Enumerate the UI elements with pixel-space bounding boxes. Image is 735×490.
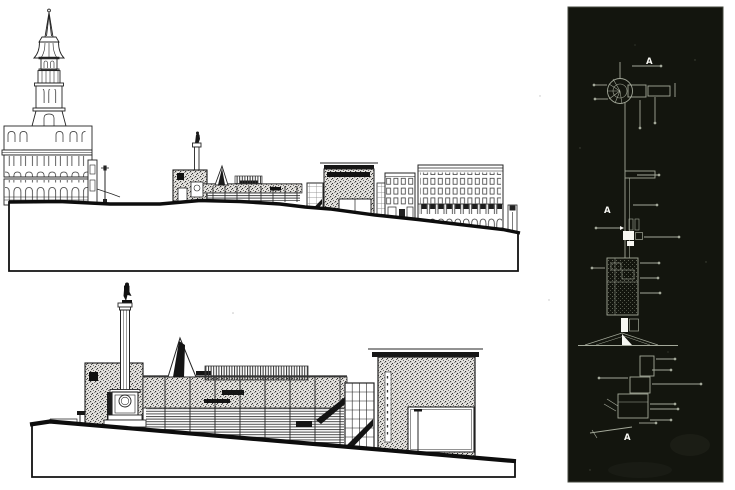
site-plan-background [568, 7, 723, 482]
museum-wing-top [173, 166, 302, 202]
vertical-sign [385, 372, 391, 442]
drawing-sheet: A A A [0, 0, 735, 490]
warehouse-elevation [418, 165, 503, 228]
top-street-elevation [2, 9, 520, 271]
museum-main-block [368, 349, 483, 458]
section-marker-a-top: A [646, 57, 653, 67]
photo-smudge [670, 434, 710, 456]
plan-highlight-block [621, 318, 628, 332]
bottom-museum-elevation [30, 283, 516, 478]
section-marker-a-bottom: A [624, 433, 631, 443]
corner-kiosk [508, 205, 517, 231]
photo-smudge-2 [608, 462, 672, 478]
section-marker-a-middle: A [604, 206, 611, 216]
street-lamp [101, 166, 109, 207]
glass-stair-tower [345, 383, 374, 448]
architectural-presentation-page: A A A [0, 0, 735, 490]
site-plan-panel: A A A [568, 7, 723, 482]
city-hall-elevation [2, 9, 120, 205]
